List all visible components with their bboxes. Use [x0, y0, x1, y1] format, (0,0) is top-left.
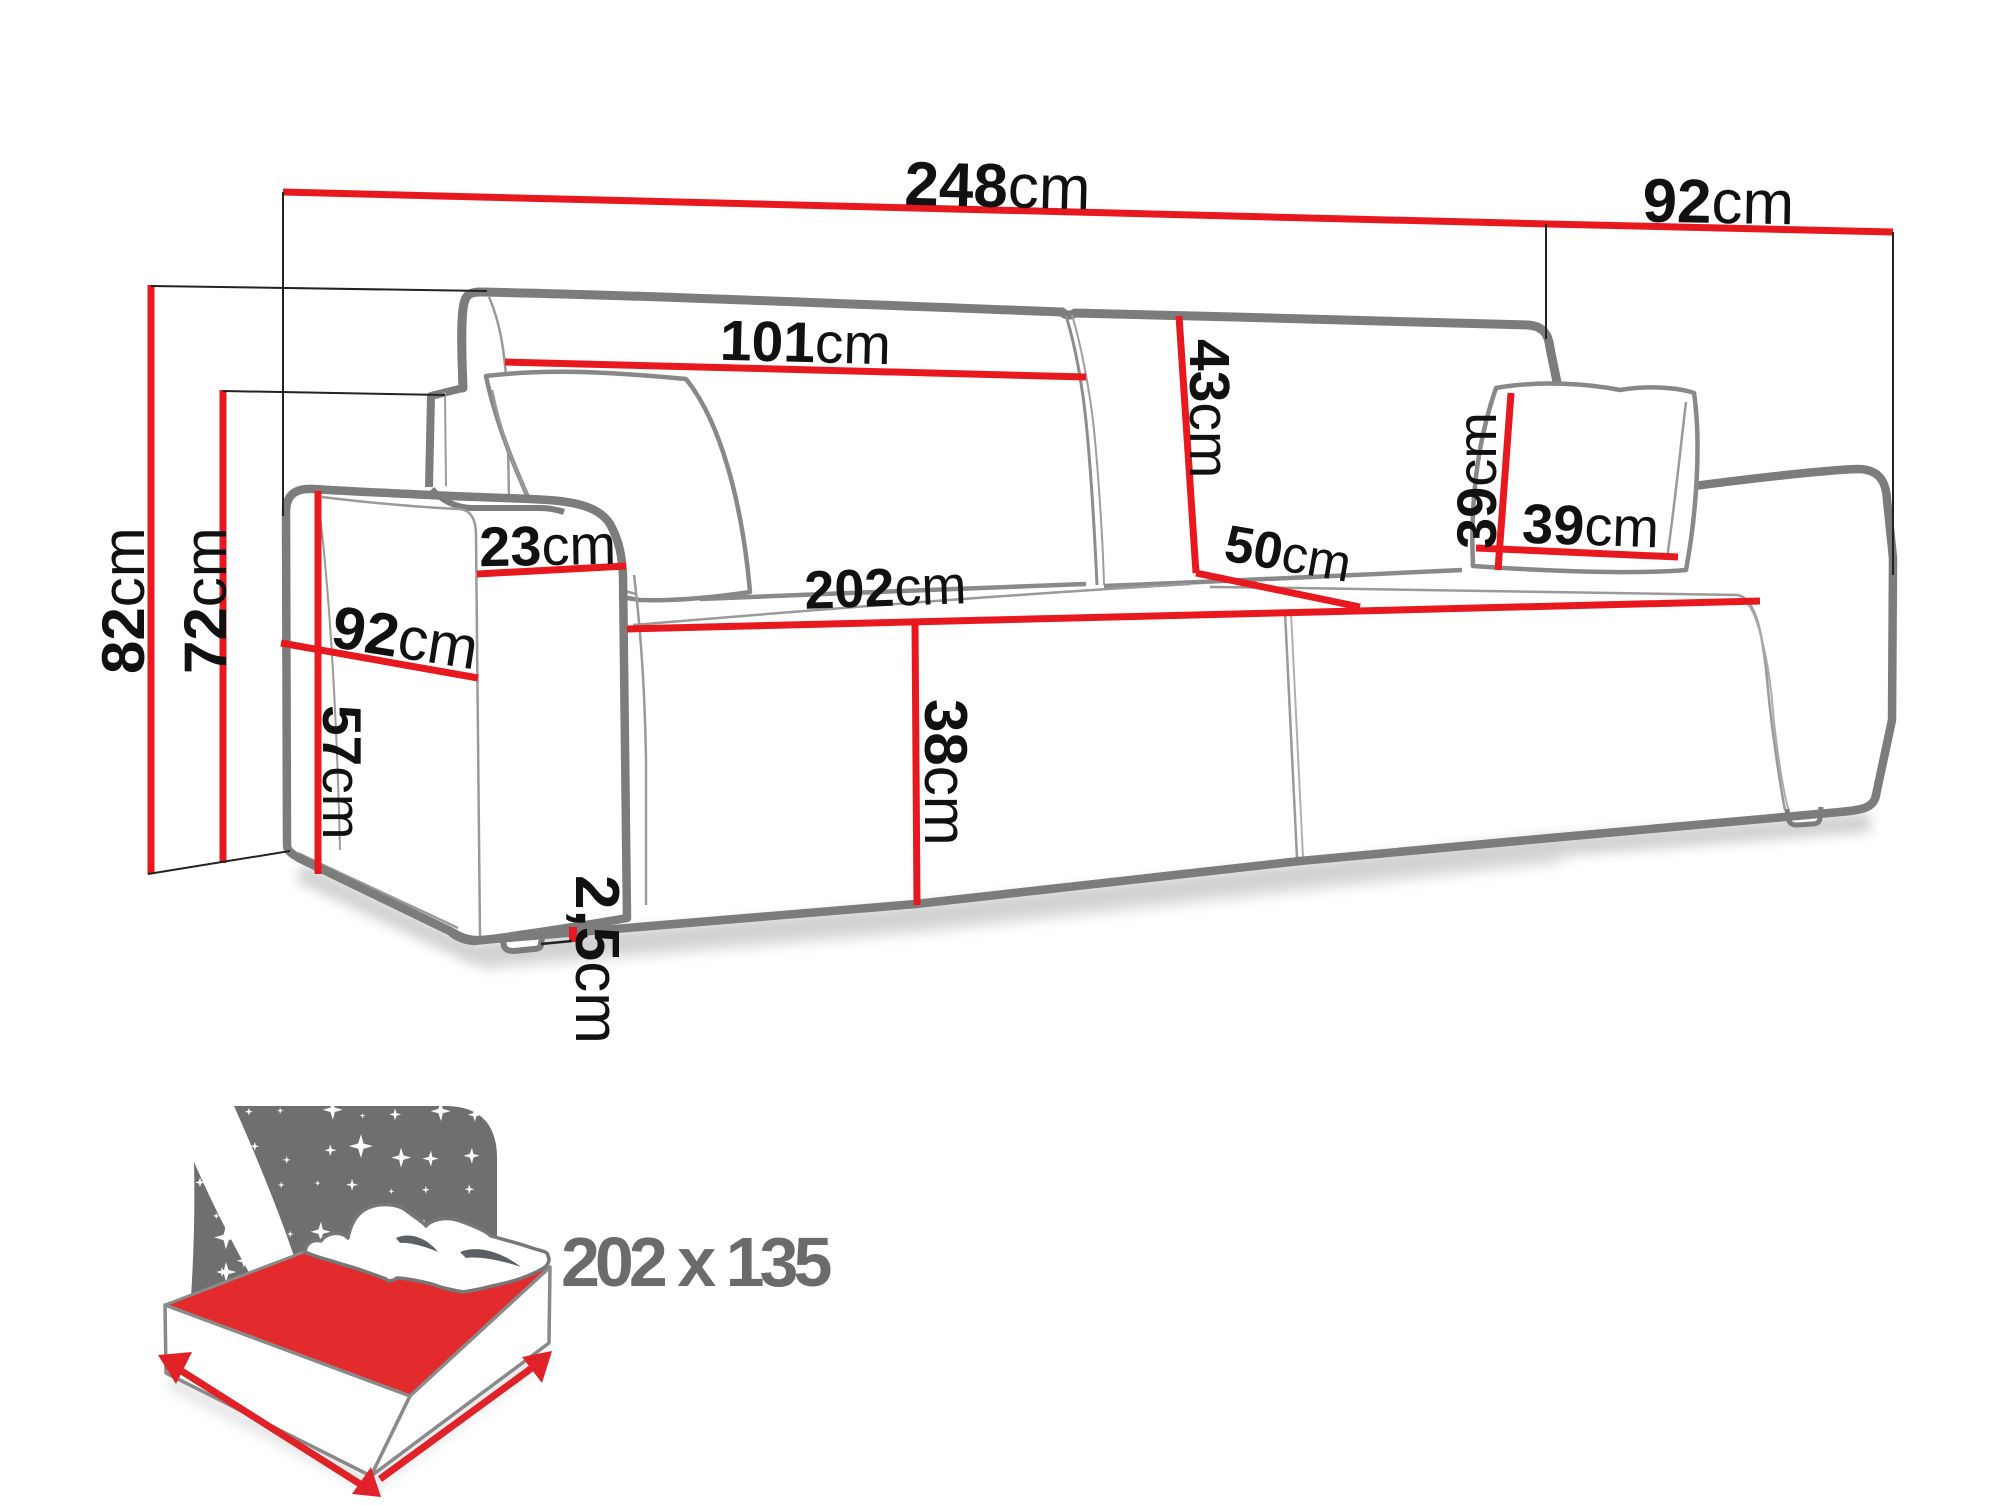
svg-text:101cm: 101cm	[719, 309, 892, 377]
svg-text:38cm: 38cm	[912, 699, 979, 846]
svg-text:202cm: 202cm	[803, 555, 967, 621]
svg-text:39cm: 39cm	[1521, 492, 1660, 560]
svg-text:2,5cm: 2,5cm	[562, 875, 631, 1044]
svg-text:39cm: 39cm	[1445, 412, 1508, 549]
svg-text:72cm: 72cm	[172, 527, 239, 674]
svg-text:92cm: 92cm	[1642, 167, 1795, 239]
svg-text:43cm: 43cm	[1177, 339, 1241, 478]
svg-text:248cm: 248cm	[904, 150, 1092, 224]
svg-text:57cm: 57cm	[311, 705, 373, 840]
svg-text:202 x 135: 202 x 135	[561, 1223, 830, 1301]
svg-text:23cm: 23cm	[479, 513, 617, 578]
svg-text:82cm: 82cm	[90, 527, 157, 674]
